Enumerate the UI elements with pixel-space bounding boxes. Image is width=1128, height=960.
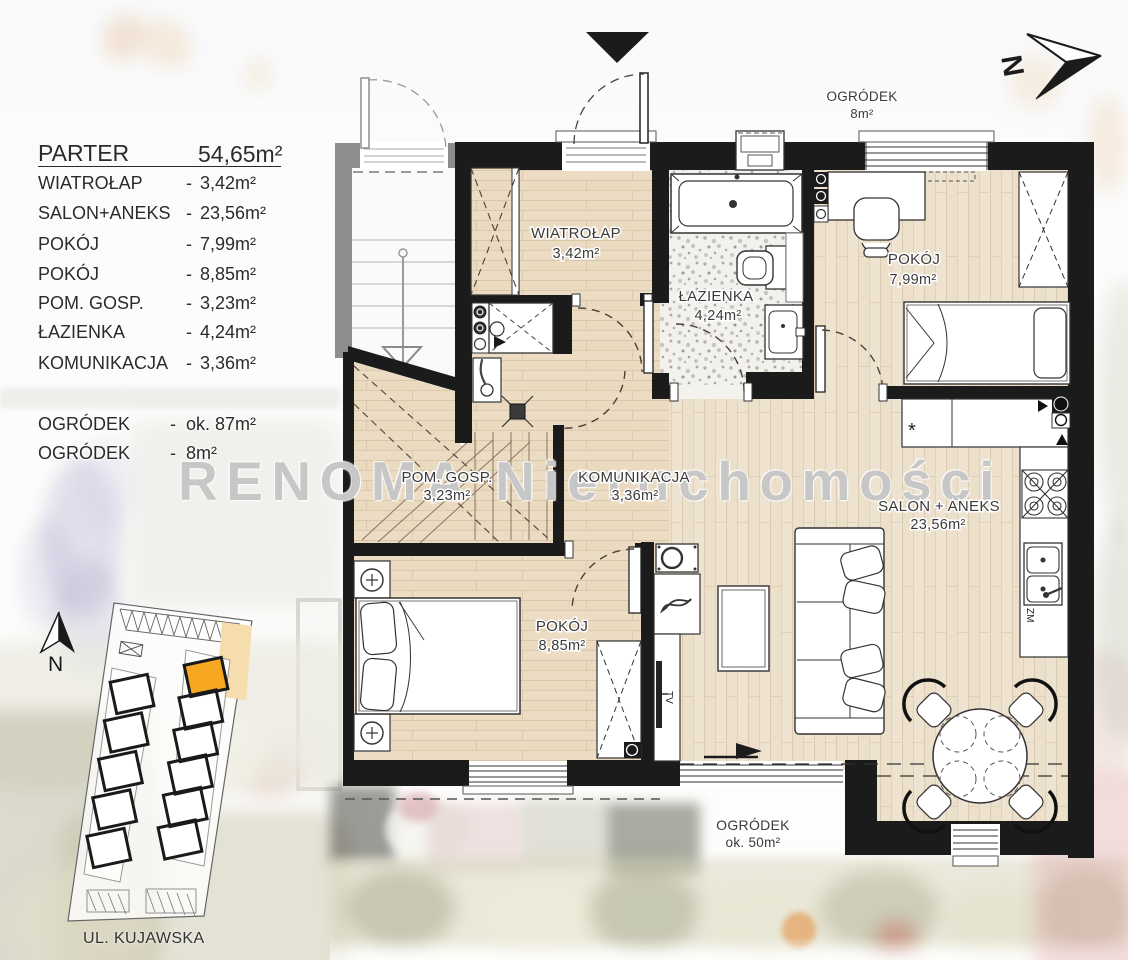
svg-text:POKÓJ: POKÓJ [888, 251, 940, 268]
svg-text:4,24m²: 4,24m² [695, 308, 742, 324]
svg-text:23,56m²: 23,56m² [910, 517, 965, 533]
svg-text:ok. 50m²: ok. 50m² [726, 835, 781, 850]
svg-text:3,23m²: 3,23m² [424, 488, 471, 504]
svg-text:OGRÓDEK: OGRÓDEK [826, 89, 897, 104]
svg-text:3,36m²: 3,36m² [612, 488, 659, 504]
svg-text:ŁAZIENKA: ŁAZIENKA [679, 288, 754, 305]
svg-text:N: N [48, 653, 63, 676]
svg-text:8m²: 8m² [850, 106, 874, 121]
svg-text:7,99m²: 7,99m² [890, 272, 937, 288]
svg-text:8,85m²: 8,85m² [539, 638, 586, 654]
svg-text:POKÓJ: POKÓJ [536, 618, 588, 635]
svg-text:3,42m²: 3,42m² [553, 246, 600, 262]
svg-text:OGRÓDEK: OGRÓDEK [716, 817, 790, 833]
svg-text:POM. GOSP.: POM. GOSP. [401, 469, 492, 486]
svg-text:KOMUNIKACJA: KOMUNIKACJA [578, 469, 690, 486]
svg-text:WIATROŁAP: WIATROŁAP [531, 225, 621, 242]
svg-text:SALON + ANEKS: SALON + ANEKS [878, 498, 1000, 515]
